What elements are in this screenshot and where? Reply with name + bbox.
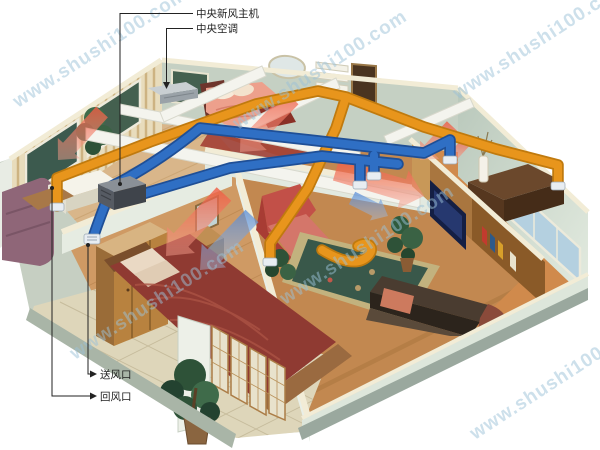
- leader-arrow-supply-vent: [90, 371, 97, 378]
- vent-living-2: [367, 172, 381, 180]
- vent-living-1: [263, 258, 277, 266]
- label-central-ac: 中央空调: [196, 22, 238, 35]
- diagram-canvas: www.shushi100.com www.shushi100.com www.…: [0, 0, 600, 450]
- vent-living-3: [353, 181, 367, 189]
- label-return-vent: 回风口: [100, 391, 132, 403]
- leader-dot-supply-vent: [86, 243, 90, 247]
- leader-arrow-return-vent: [90, 393, 97, 400]
- vase-body: [479, 156, 488, 182]
- label-supply-vent: 送风口: [100, 368, 132, 381]
- vent-entry: [443, 156, 457, 164]
- vent-study: [551, 182, 565, 190]
- leader-dot-return-vent: [50, 186, 54, 190]
- hvac-isometric-diagram: www.shushi100.com www.shushi100.com www.…: [0, 0, 600, 450]
- leader-dot-fresh-air-host: [118, 182, 122, 186]
- label-fresh-air-host: 中央新风主机: [196, 7, 259, 20]
- vent-bedroom2-supply: [84, 234, 100, 244]
- watermark-text: www.shushi100.com: [448, 0, 600, 105]
